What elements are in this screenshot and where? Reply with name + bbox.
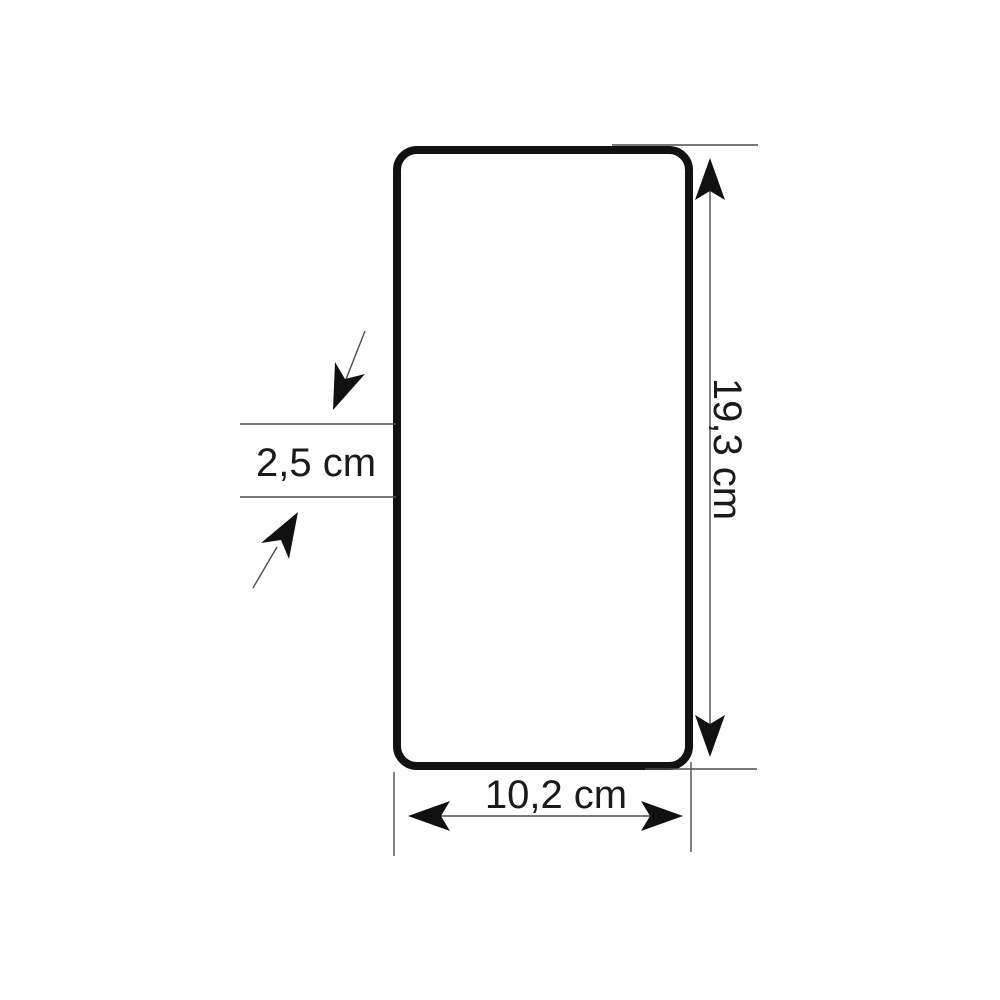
arrowhead-down-left-icon	[333, 362, 365, 410]
leader-line-lower	[253, 547, 277, 588]
arrowhead-up-right-icon	[261, 512, 298, 559]
side-detail-dimension-label: 2,5 cm	[256, 441, 376, 485]
dimension-diagram: 19,3 cm 10,2 cm 2,5 cm	[0, 0, 1000, 1000]
width-dimension-label: 10,2 cm	[485, 773, 627, 817]
product-outline	[397, 150, 689, 766]
dimension-drawing-canvas: 19,3 cm 10,2 cm 2,5 cm	[0, 0, 1000, 1000]
height-dimension-label: 19,3 cm	[705, 378, 749, 520]
